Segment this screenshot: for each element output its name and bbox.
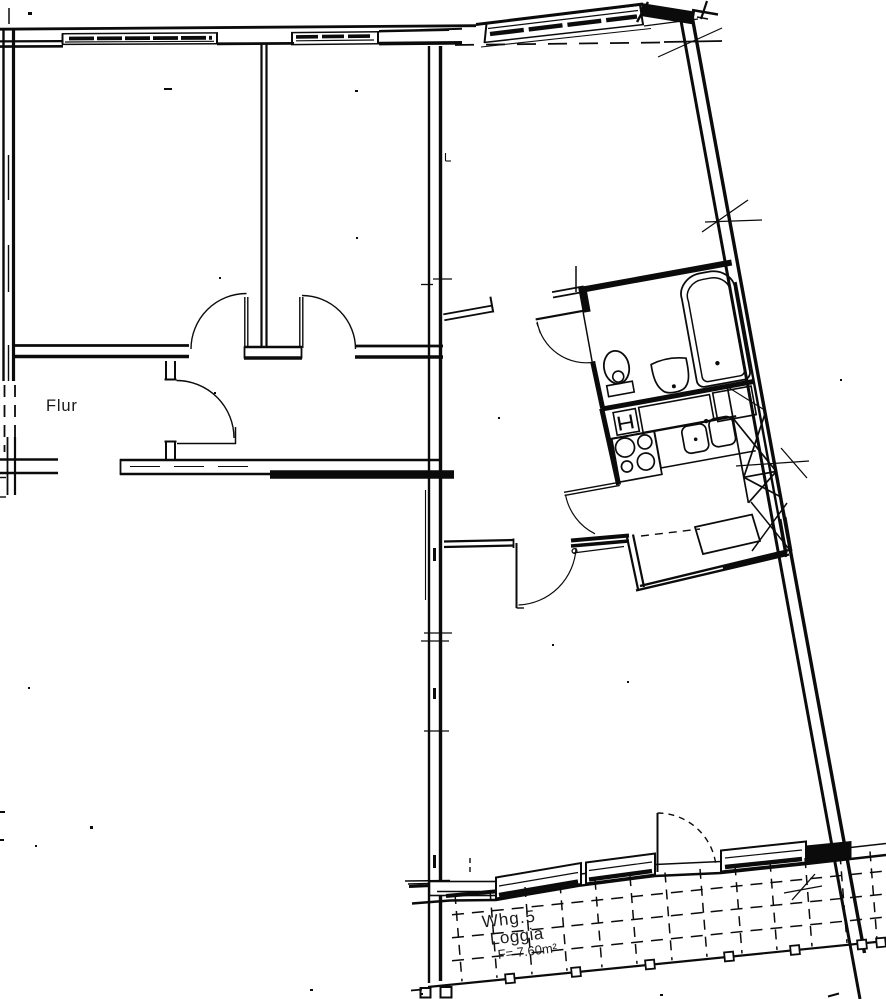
svg-text:Flur: Flur — [46, 397, 78, 415]
